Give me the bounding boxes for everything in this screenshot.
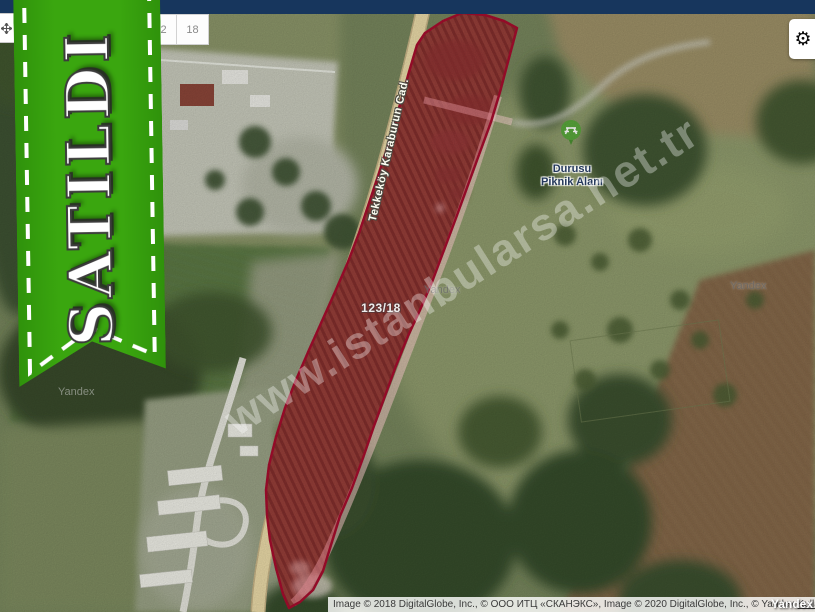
yandex-watermark: Yandex — [730, 280, 767, 292]
attribution-bar: Image © 2018 DigitalGlobe, Inc., © ООО И… — [328, 597, 815, 612]
yandex-logo[interactable]: Yandex — [771, 597, 813, 611]
gear-icon: ⚙ — [794, 30, 811, 49]
yandex-watermark: Yandex — [58, 386, 95, 398]
map-control-box-2[interactable]: 18 — [177, 14, 209, 45]
move-icon — [1, 23, 12, 34]
settings-button[interactable]: ⚙ — [789, 19, 815, 59]
sold-ribbon: SATILDI — [13, 0, 166, 395]
sold-ribbon-label: SATILDI — [52, 29, 127, 347]
attribution-text: Image © 2018 DigitalGlobe, Inc., © ООО И… — [333, 599, 795, 610]
